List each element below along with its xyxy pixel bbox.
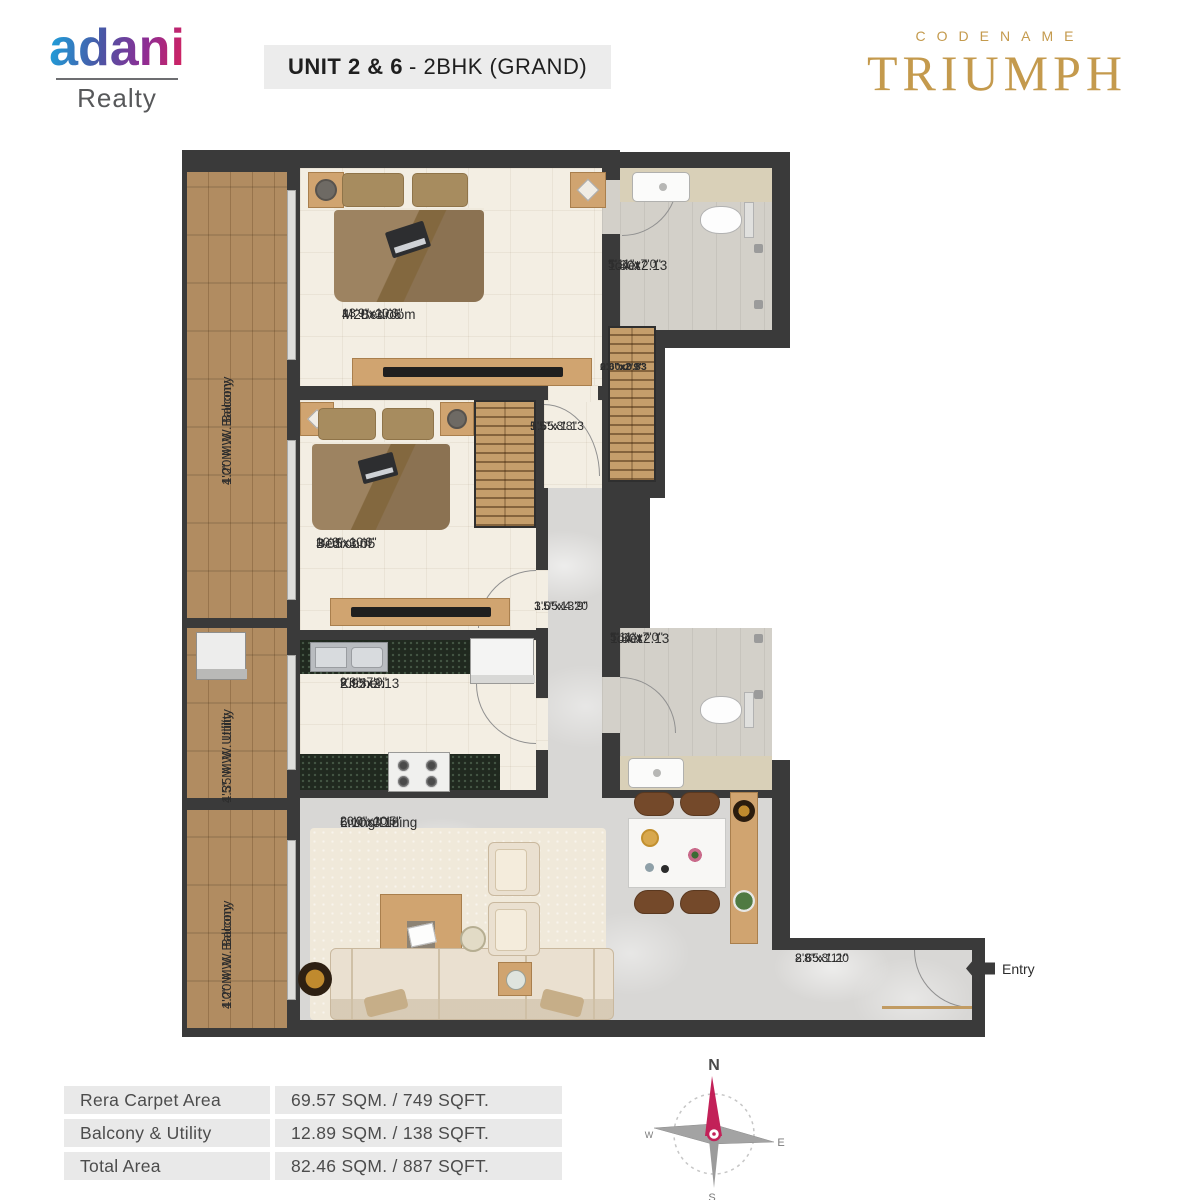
tv-icon — [383, 367, 563, 377]
room-dim-imperial: 10'0"x10'0" — [316, 534, 377, 552]
triumph-wordmark: TRIUMPH — [832, 48, 1162, 98]
dining-chair — [680, 890, 720, 914]
kitchen-door-opening — [536, 698, 548, 750]
room-dim-imperial: 20'0"x10'5" — [340, 813, 401, 831]
floor-plan-page: adani Realty UNIT 2 & 6 - 2BHK (GRAND) C… — [0, 0, 1200, 1200]
room-dim-imperial: 5'11"x7'0" — [608, 256, 661, 274]
dining-chair — [634, 792, 674, 816]
burner — [397, 775, 410, 788]
compass-west-label: W — [645, 1130, 654, 1140]
dining-chair — [634, 890, 674, 914]
wc-tank — [744, 202, 754, 238]
side-table — [498, 962, 532, 996]
toilet-mid-door-opening — [602, 677, 620, 733]
floor-lamp-icon — [460, 926, 486, 952]
area-row-label: Balcony & Utility — [64, 1119, 270, 1147]
entry-arrow-icon — [966, 952, 995, 985]
label-utility: 1.35 M.W. Utility 4'5" M.W. Utility — [217, 623, 257, 803]
pillow — [318, 408, 376, 440]
unit-number: UNIT 2 & 6 — [288, 54, 403, 80]
burner — [397, 759, 410, 772]
passage-floor — [548, 488, 602, 800]
bedroom-wardrobe — [474, 400, 536, 528]
cup-icon — [645, 863, 654, 872]
sofa-cushion — [363, 988, 409, 1018]
burner — [425, 775, 438, 788]
kitchen-sink — [310, 642, 388, 672]
wc-tank — [744, 692, 754, 728]
faucet-dot — [653, 769, 661, 777]
area-row-value: 82.46 SQM. / 887 SQFT. — [275, 1152, 562, 1180]
unit-title-box: UNIT 2 & 6 - 2BHK (GRAND) — [264, 45, 611, 89]
decor-diamond — [577, 179, 600, 202]
armchair-cushion — [495, 909, 527, 951]
floor-plan: M. Bedroom 4.20x3.05 13'9"x10'0" Bedroom… — [182, 150, 985, 1037]
washbasin — [632, 172, 690, 202]
bedroom-window — [287, 440, 296, 600]
faucet-dot — [659, 183, 667, 191]
compass-south-label: S — [708, 1192, 715, 1200]
area-row-value: 69.57 SQM. / 749 SQFT. — [275, 1086, 562, 1114]
dim-imperial: 5'5"x3'8" — [530, 418, 577, 436]
wardrobe-niche — [608, 326, 656, 482]
area-row-value: 12.89 SQM. / 138 SQFT. — [275, 1119, 562, 1147]
dim-imperial: 8'8"x3'11" — [795, 950, 848, 968]
plate-icon — [641, 829, 659, 847]
dining-chair — [680, 792, 720, 816]
area-row-label: Total Area — [64, 1152, 270, 1180]
hob — [388, 752, 450, 792]
realty-label: Realty — [42, 83, 192, 114]
sink-bowl — [315, 647, 347, 668]
bedroom-tv-unit — [330, 598, 510, 626]
washbasin — [628, 758, 684, 788]
label-balcony-top: 1.20 M.W. Balcony 4'0" M.W. Balcony — [217, 305, 257, 485]
logo-divider — [56, 78, 178, 80]
pillow — [412, 173, 468, 207]
kitchen-window — [287, 655, 296, 770]
dining-table — [628, 818, 726, 888]
balcony-dim-imperial: 4'0" M.W. Balcony — [217, 380, 237, 485]
shower-control-icon — [754, 244, 763, 253]
plant-bowl-icon — [298, 962, 332, 996]
compass-east-label: E — [777, 1137, 784, 1149]
area-table: Rera Carpet Area 69.57 SQM. / 749 SQFT. … — [64, 1086, 562, 1180]
burner — [425, 759, 438, 772]
dim-imperial: 3'5"x13'9" — [534, 598, 588, 616]
armchair — [488, 902, 540, 956]
flower-icon — [687, 847, 703, 863]
label-balcony-bottom: 1.20 M.W. Balcony 4'0" M.W. Balcony — [217, 829, 257, 1009]
tv-icon — [351, 607, 491, 617]
pillow — [342, 173, 404, 207]
shower-control-icon — [754, 690, 763, 699]
glass-top — [506, 970, 526, 990]
area-row-label: Rera Carpet Area — [64, 1086, 270, 1114]
codename-label: CODENAME — [838, 28, 1162, 44]
pillow — [382, 408, 434, 440]
dim-imperial: 2'0"x2'9" — [600, 360, 644, 374]
m-bedroom-dresser — [352, 358, 592, 386]
bowl-icon — [661, 865, 669, 873]
potted-plant-icon — [733, 890, 755, 912]
utility-dim-imperial: 4'5" M.W. Utility — [217, 713, 237, 803]
vase-icon — [733, 800, 755, 822]
nightstand — [570, 172, 606, 208]
sofa — [330, 948, 614, 1020]
shower-control-icon — [754, 634, 763, 643]
project-logo: CODENAME TRIUMPH — [832, 28, 1162, 98]
decor-bowl — [447, 409, 467, 429]
m-bedroom-door-opening — [548, 385, 598, 402]
master-bed — [334, 168, 484, 302]
sink-bowl — [351, 647, 383, 668]
toilet-wc — [700, 696, 742, 724]
adani-wordmark: adani — [42, 22, 192, 74]
fridge — [470, 638, 534, 684]
room-dim-imperial: 5'11"x7'0" — [610, 629, 663, 647]
unit-type: - 2BHK (GRAND) — [409, 54, 587, 80]
shower-control-icon — [754, 300, 763, 309]
compass-icon: N E S W — [642, 1056, 792, 1200]
compass-north-label: N — [708, 1057, 720, 1074]
sofa-cushion — [539, 988, 585, 1018]
entry-marker: Entry — [966, 952, 1035, 985]
room-dim-imperial: 13'9"x10'0" — [342, 305, 403, 323]
fridge-handle — [471, 675, 535, 683]
m-bedroom-window — [287, 190, 296, 360]
entry-door-leaf — [882, 1006, 972, 1009]
bed — [312, 404, 450, 530]
armchair — [488, 842, 540, 896]
adani-realty-logo: adani Realty — [42, 22, 192, 114]
balcony-dim-imperial: 4'0" M.W. Balcony — [217, 904, 237, 1009]
entry-label: Entry — [1002, 961, 1035, 977]
toilet-wc — [700, 206, 742, 234]
living-window — [287, 840, 296, 1000]
armchair-cushion — [495, 849, 527, 891]
room-dim-imperial: 9'8"x7'0" — [340, 674, 387, 692]
